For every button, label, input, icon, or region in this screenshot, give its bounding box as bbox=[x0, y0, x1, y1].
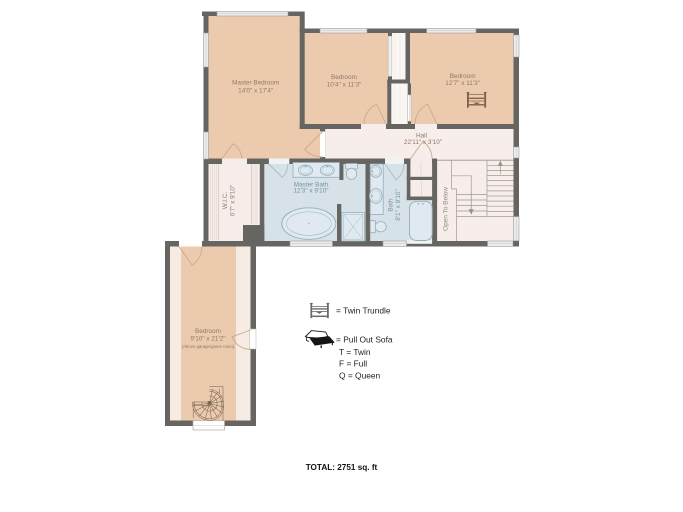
svg-text:T = Twin: T = Twin bbox=[339, 347, 371, 357]
svg-text:12'7" x 11'3": 12'7" x 11'3" bbox=[445, 80, 480, 87]
svg-text:Master Bedroom: Master Bedroom bbox=[232, 80, 279, 87]
svg-text:Bedroom: Bedroom bbox=[331, 74, 357, 81]
svg-text:= Twin Trundle: = Twin Trundle bbox=[336, 306, 391, 316]
svg-text:6'7" x 9'10": 6'7" x 9'10" bbox=[230, 185, 237, 217]
svg-text:Bath: Bath bbox=[387, 198, 394, 212]
svg-text:W.I.C.: W.I.C. bbox=[222, 192, 229, 210]
svg-text:TOTAL: 2751 sq. ft: TOTAL: 2751 sq. ft bbox=[306, 463, 378, 472]
svg-text:(Above garage/game room): (Above garage/game room) bbox=[182, 344, 235, 349]
svg-text:10'4" x 11'3": 10'4" x 11'3" bbox=[327, 81, 362, 88]
svg-text:22'11" x 3'10": 22'11" x 3'10" bbox=[404, 139, 442, 146]
svg-text:Q = Queen: Q = Queen bbox=[339, 371, 381, 381]
svg-text:Bedroom: Bedroom bbox=[450, 73, 476, 80]
svg-text:= Pull Out Sofa: = Pull Out Sofa bbox=[336, 335, 393, 345]
svg-text:Open To Below: Open To Below bbox=[442, 187, 449, 231]
svg-text:12'3" x 9'10": 12'3" x 9'10" bbox=[293, 188, 328, 195]
svg-text:9'10" x 21'2": 9'10" x 21'2" bbox=[190, 335, 225, 342]
svg-text:8'1" x 9'10": 8'1" x 9'10" bbox=[395, 189, 402, 221]
svg-text:F = Full: F = Full bbox=[339, 359, 367, 369]
svg-text:14'0" x 17'4": 14'0" x 17'4" bbox=[238, 87, 273, 94]
svg-text:Bedroom: Bedroom bbox=[195, 328, 221, 335]
